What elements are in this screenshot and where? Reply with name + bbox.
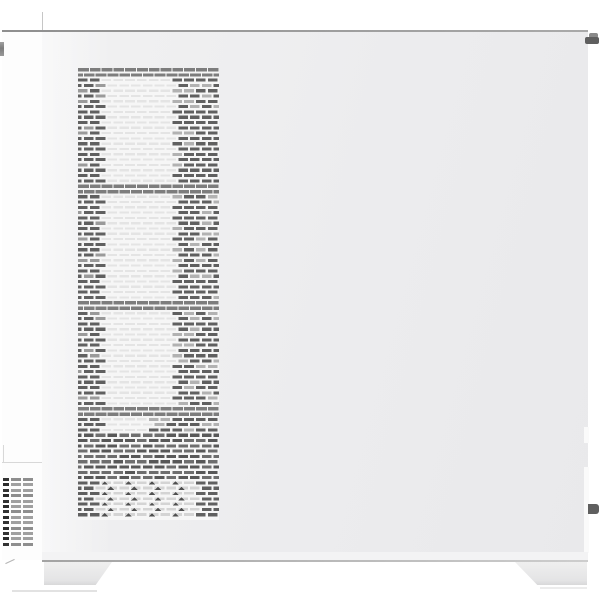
mesh-hole bbox=[90, 503, 100, 506]
mesh-hole bbox=[155, 243, 165, 245]
mesh-hole bbox=[178, 158, 188, 161]
mesh-hole bbox=[167, 137, 177, 139]
mesh-hole bbox=[184, 110, 194, 113]
mesh-hole bbox=[113, 280, 123, 282]
mesh-hole bbox=[113, 365, 123, 367]
mesh-hole bbox=[167, 307, 178, 310]
mesh-hole bbox=[196, 344, 206, 347]
mesh-hole bbox=[202, 275, 212, 278]
mesh-hole bbox=[96, 264, 106, 267]
mesh-hole bbox=[90, 206, 100, 209]
mesh-hole bbox=[190, 254, 200, 257]
mesh-hole bbox=[161, 513, 171, 516]
mesh-hole bbox=[90, 492, 100, 495]
mesh-hole bbox=[137, 429, 147, 431]
mesh-hole bbox=[161, 439, 171, 442]
mesh-hole bbox=[131, 381, 141, 383]
mesh-hole bbox=[143, 201, 153, 203]
mesh-hole bbox=[84, 466, 94, 469]
mesh-hole bbox=[102, 291, 112, 293]
mesh-hole bbox=[90, 280, 100, 283]
mesh-hole bbox=[108, 328, 118, 330]
mesh-hole bbox=[161, 68, 172, 71]
mesh-hole bbox=[178, 338, 188, 341]
mesh-hole bbox=[208, 195, 218, 198]
mesh-hole bbox=[90, 185, 101, 188]
mesh-hole bbox=[155, 275, 165, 277]
mesh-hole bbox=[155, 73, 166, 76]
grille-slot bbox=[3, 483, 9, 486]
mesh-hole bbox=[161, 312, 171, 314]
mesh-hole bbox=[108, 360, 118, 362]
mesh-hole bbox=[113, 217, 123, 219]
mesh-hole bbox=[143, 233, 153, 235]
mesh-hole bbox=[102, 270, 112, 272]
mesh-hole bbox=[96, 73, 107, 76]
mesh-hole bbox=[190, 169, 200, 172]
mesh-hole bbox=[161, 259, 171, 261]
mesh-hole bbox=[149, 333, 159, 335]
mesh-hole bbox=[202, 423, 212, 426]
mesh-hole bbox=[143, 497, 153, 500]
grille-slot bbox=[11, 483, 21, 486]
mesh-hole bbox=[196, 471, 206, 474]
mesh-hole bbox=[184, 238, 194, 241]
mesh-hole bbox=[119, 508, 129, 511]
mesh-hole bbox=[167, 222, 177, 224]
mesh-hole bbox=[78, 407, 89, 410]
mesh-hole bbox=[125, 386, 135, 388]
mesh-hole bbox=[125, 238, 135, 240]
mesh-hole bbox=[90, 216, 100, 219]
mesh-hole bbox=[90, 322, 100, 325]
mesh-hole bbox=[184, 460, 194, 463]
mesh-hole bbox=[167, 243, 177, 245]
mesh-hole bbox=[196, 428, 206, 431]
mesh-hole bbox=[149, 280, 159, 282]
mesh-hole bbox=[167, 466, 177, 469]
mesh-hole bbox=[202, 148, 212, 151]
mesh-hole bbox=[78, 386, 88, 389]
mesh-hole bbox=[184, 174, 194, 177]
mesh-hole bbox=[202, 444, 212, 447]
mesh-hole bbox=[78, 142, 88, 145]
mesh-hole bbox=[78, 285, 82, 288]
mesh-hole bbox=[131, 455, 141, 458]
mesh-hole bbox=[125, 333, 135, 335]
mesh-hole bbox=[214, 232, 219, 235]
mesh-hole bbox=[125, 90, 135, 92]
mesh-hole bbox=[84, 211, 94, 214]
mesh-hole bbox=[184, 365, 194, 368]
mesh-hole bbox=[131, 212, 141, 214]
mesh-hole bbox=[208, 503, 218, 506]
mesh-hole bbox=[214, 148, 219, 151]
mesh-hole bbox=[178, 105, 188, 108]
mesh-hole bbox=[155, 434, 165, 437]
mesh-hole bbox=[172, 301, 183, 304]
mesh-hole bbox=[161, 174, 171, 176]
mesh-hole bbox=[84, 285, 94, 288]
mesh-hole bbox=[202, 338, 212, 341]
mesh-hole bbox=[214, 243, 219, 246]
mesh-hole bbox=[214, 201, 219, 204]
mesh-hole bbox=[178, 169, 188, 172]
grille-slot bbox=[3, 532, 9, 535]
mesh-hole bbox=[202, 232, 212, 235]
mesh-hole bbox=[131, 148, 141, 150]
mesh-hole bbox=[84, 434, 94, 437]
mesh-hole bbox=[78, 471, 88, 474]
mesh-hole bbox=[190, 95, 200, 98]
mesh-hole bbox=[178, 476, 188, 479]
mesh-hole bbox=[119, 307, 130, 310]
mesh-hole bbox=[125, 111, 135, 113]
grille-slot bbox=[3, 537, 9, 540]
mesh-hole bbox=[208, 259, 218, 262]
mesh-hole bbox=[167, 360, 177, 362]
mesh-hole bbox=[155, 169, 165, 171]
mesh-hole bbox=[78, 73, 83, 76]
mesh-hole bbox=[84, 391, 94, 394]
mesh-hole bbox=[172, 174, 182, 177]
mesh-hole bbox=[161, 481, 171, 484]
mesh-hole bbox=[102, 121, 112, 123]
mesh-hole bbox=[172, 439, 182, 442]
grille-slot bbox=[3, 510, 9, 513]
mesh-hole bbox=[119, 106, 129, 108]
grille-slot bbox=[11, 478, 21, 481]
mesh-hole bbox=[119, 73, 130, 76]
mesh-hole bbox=[108, 95, 118, 97]
mesh-hole bbox=[84, 444, 94, 447]
mesh-hole bbox=[113, 206, 123, 208]
mesh-hole bbox=[102, 365, 112, 367]
mesh-hole bbox=[78, 153, 88, 156]
mesh-hole bbox=[90, 365, 100, 368]
mesh-hole bbox=[155, 328, 165, 330]
mesh-hole bbox=[90, 460, 100, 463]
mesh-hole bbox=[108, 265, 118, 267]
mesh-hole bbox=[196, 503, 206, 506]
mesh-hole bbox=[184, 68, 195, 71]
mesh-hole bbox=[84, 381, 94, 384]
mesh-hole bbox=[131, 254, 141, 256]
mesh-hole bbox=[214, 158, 219, 161]
mesh-hole bbox=[78, 137, 82, 140]
mesh-hole bbox=[102, 143, 112, 145]
mesh-hole bbox=[137, 79, 147, 81]
mesh-hole bbox=[214, 296, 219, 299]
mesh-hole bbox=[90, 301, 101, 304]
mesh-hole bbox=[131, 116, 141, 118]
mesh-hole bbox=[90, 227, 100, 230]
mesh-hole bbox=[167, 455, 177, 458]
mesh-hole bbox=[167, 116, 177, 118]
mesh-hole bbox=[167, 381, 177, 383]
mesh-hole bbox=[102, 397, 112, 399]
mesh-hole bbox=[184, 481, 194, 484]
mesh-hole bbox=[90, 418, 100, 421]
mesh-hole bbox=[78, 513, 88, 516]
mesh-hole bbox=[196, 227, 206, 230]
mesh-hole bbox=[84, 497, 94, 500]
mesh-hole bbox=[190, 296, 200, 299]
mesh-hole bbox=[96, 434, 106, 437]
mesh-hole bbox=[78, 338, 82, 341]
mesh-hole bbox=[208, 312, 218, 315]
mesh-hole bbox=[137, 386, 147, 388]
mesh-hole bbox=[78, 317, 82, 320]
mesh-hole bbox=[125, 174, 135, 176]
mesh-hole bbox=[78, 264, 82, 267]
mesh-hole bbox=[202, 370, 212, 373]
mesh-hole bbox=[78, 381, 82, 384]
mesh-hole bbox=[178, 466, 188, 469]
mesh-hole bbox=[90, 142, 100, 145]
mesh-hole bbox=[214, 285, 219, 288]
mesh-hole bbox=[90, 375, 100, 378]
mesh-hole bbox=[149, 249, 159, 251]
mesh-hole bbox=[78, 211, 82, 214]
mesh-hole bbox=[155, 307, 166, 310]
mesh-hole bbox=[149, 270, 159, 272]
mesh-hole bbox=[190, 423, 200, 426]
mesh-hole bbox=[208, 121, 218, 124]
mesh-hole bbox=[131, 392, 141, 394]
mesh-hole bbox=[178, 126, 188, 129]
mesh-hole bbox=[78, 370, 82, 373]
mesh-hole bbox=[208, 280, 218, 283]
foot-shadow-right bbox=[540, 587, 587, 589]
mesh-hole bbox=[137, 418, 147, 420]
mesh-hole bbox=[149, 439, 159, 442]
mesh-hole bbox=[149, 121, 159, 123]
mesh-hole bbox=[178, 254, 188, 257]
mesh-hole bbox=[90, 259, 100, 262]
mesh-hole bbox=[208, 163, 218, 166]
mesh-hole bbox=[172, 68, 183, 71]
mesh-hole bbox=[214, 275, 219, 278]
mesh-hole bbox=[90, 407, 101, 410]
mesh-hole bbox=[108, 402, 118, 404]
mesh-hole bbox=[167, 265, 177, 267]
mesh-hole bbox=[113, 460, 123, 463]
mesh-hole bbox=[184, 397, 194, 400]
mesh-hole bbox=[196, 121, 206, 124]
mesh-hole bbox=[178, 222, 188, 225]
mesh-hole bbox=[137, 185, 148, 188]
mesh-hole bbox=[208, 79, 218, 82]
mesh-hole bbox=[161, 143, 171, 145]
mesh-hole bbox=[119, 137, 129, 139]
mesh-hole bbox=[190, 317, 200, 320]
mesh-hole bbox=[155, 116, 165, 118]
mesh-hole bbox=[214, 444, 219, 447]
mesh-hole bbox=[131, 286, 141, 288]
grille-slot bbox=[23, 510, 33, 513]
mesh-hole bbox=[214, 95, 219, 98]
mesh-hole bbox=[84, 360, 94, 363]
grille-slot bbox=[11, 510, 21, 513]
mesh-hole bbox=[90, 428, 100, 431]
mesh-hole bbox=[202, 466, 212, 469]
mesh-hole bbox=[149, 460, 159, 463]
grille-slot bbox=[23, 494, 33, 497]
mesh-hole bbox=[149, 153, 159, 155]
mesh-hole bbox=[119, 190, 130, 193]
mesh-hole bbox=[172, 428, 182, 431]
mesh-hole bbox=[113, 174, 123, 176]
mesh-hole bbox=[214, 434, 219, 437]
mesh-hole bbox=[172, 322, 182, 325]
mesh-hole bbox=[161, 471, 171, 474]
mesh-hole bbox=[108, 137, 118, 139]
mesh-hole bbox=[208, 375, 218, 378]
mesh-hole bbox=[137, 365, 147, 367]
mesh-hole bbox=[131, 106, 141, 108]
grille-slot bbox=[11, 521, 21, 524]
mesh-hole bbox=[90, 153, 100, 156]
mesh-hole bbox=[119, 233, 129, 235]
mesh-hole bbox=[161, 79, 171, 81]
mesh-hole bbox=[108, 413, 119, 416]
mesh-hole bbox=[84, 232, 94, 235]
mesh-hole bbox=[149, 344, 159, 346]
mesh-hole bbox=[96, 455, 106, 458]
mesh-hole bbox=[125, 206, 135, 208]
mesh-hole bbox=[78, 254, 82, 257]
mesh-hole bbox=[214, 338, 219, 341]
thumbscrew-head bbox=[585, 37, 599, 44]
mesh-hole bbox=[208, 333, 218, 336]
mesh-hole bbox=[78, 243, 82, 246]
mesh-hole bbox=[208, 100, 218, 103]
mesh-hole bbox=[190, 264, 200, 267]
mesh-hole bbox=[84, 169, 94, 172]
grille-slot bbox=[3, 489, 9, 492]
mesh-hole bbox=[161, 418, 171, 421]
mesh-hole bbox=[196, 89, 206, 92]
mesh-hole bbox=[214, 254, 219, 257]
mesh-hole bbox=[155, 318, 165, 320]
mesh-hole bbox=[172, 333, 182, 336]
mesh-hole bbox=[113, 312, 123, 314]
mesh-hole bbox=[167, 233, 177, 235]
mesh-hole bbox=[149, 132, 159, 134]
mesh-hole bbox=[78, 110, 88, 113]
mesh-hole bbox=[214, 349, 219, 352]
mesh-hole bbox=[208, 397, 218, 400]
mesh-hole bbox=[84, 307, 95, 310]
mesh-hole bbox=[78, 503, 88, 506]
mesh-hole bbox=[196, 174, 206, 177]
mesh-hole bbox=[96, 508, 106, 511]
mesh-hole bbox=[149, 164, 159, 166]
mesh-hole bbox=[131, 169, 141, 171]
mesh-hole bbox=[131, 476, 141, 479]
mesh-hole bbox=[172, 407, 183, 410]
mesh-hole bbox=[143, 148, 153, 150]
mesh-hole bbox=[78, 206, 88, 209]
mesh-hole bbox=[172, 238, 182, 241]
mesh-hole bbox=[167, 73, 178, 76]
mesh-hole bbox=[143, 318, 153, 320]
mesh-hole bbox=[78, 307, 83, 310]
mesh-hole bbox=[78, 248, 88, 251]
mesh-hole bbox=[119, 201, 129, 203]
mesh-hole bbox=[184, 163, 194, 166]
rear-edge-notch-upper bbox=[584, 427, 589, 443]
mesh-hole bbox=[84, 487, 94, 490]
mesh-hole bbox=[155, 159, 165, 161]
mesh-hole bbox=[131, 180, 141, 182]
mesh-hole bbox=[90, 471, 100, 474]
mesh-hole bbox=[78, 269, 88, 272]
mesh-hole bbox=[196, 216, 206, 219]
mesh-hole bbox=[84, 370, 94, 373]
mesh-hole bbox=[113, 471, 123, 474]
mesh-hole bbox=[84, 328, 94, 331]
mesh-hole bbox=[149, 217, 159, 219]
mesh-hole bbox=[78, 450, 88, 453]
mesh-hole bbox=[137, 376, 147, 378]
mesh-hole bbox=[178, 201, 188, 204]
mesh-hole bbox=[84, 158, 94, 161]
mesh-hole bbox=[190, 307, 201, 310]
mesh-hole bbox=[184, 100, 194, 103]
mesh-hole bbox=[78, 402, 82, 405]
mesh-hole bbox=[119, 381, 129, 383]
mesh-hole bbox=[143, 339, 153, 341]
mesh-hole bbox=[184, 259, 194, 262]
mesh-hole bbox=[190, 211, 200, 214]
mesh-hole bbox=[102, 164, 112, 166]
mesh-hole bbox=[172, 248, 182, 251]
mesh-hole bbox=[214, 317, 219, 320]
mesh-hole bbox=[161, 270, 171, 272]
mesh-hole bbox=[208, 153, 218, 156]
mesh-hole bbox=[143, 275, 153, 277]
mesh-hole bbox=[102, 217, 112, 219]
mesh-hole bbox=[143, 243, 153, 245]
grille-slot bbox=[3, 521, 9, 524]
mesh-hole bbox=[190, 508, 200, 511]
mesh-hole bbox=[172, 142, 182, 145]
mesh-hole bbox=[108, 201, 118, 203]
mesh-hole bbox=[161, 217, 171, 219]
mesh-hole bbox=[119, 434, 129, 437]
mesh-hole bbox=[137, 344, 147, 346]
mesh-hole bbox=[214, 413, 219, 416]
mesh-hole bbox=[214, 222, 219, 225]
grille-slot bbox=[11, 532, 21, 535]
mesh-hole bbox=[161, 280, 171, 282]
mesh-hole bbox=[155, 466, 165, 469]
mesh-hole bbox=[113, 90, 123, 92]
mesh-hole bbox=[90, 238, 100, 241]
mesh-hole bbox=[143, 180, 153, 182]
mesh-hole bbox=[167, 487, 177, 490]
mesh-hole bbox=[125, 376, 135, 378]
mesh-hole bbox=[214, 137, 219, 140]
grille-slot bbox=[11, 505, 21, 508]
mesh-hole bbox=[196, 100, 206, 103]
mesh-hole bbox=[178, 148, 188, 151]
mesh-hole bbox=[137, 513, 147, 516]
mesh-hole bbox=[78, 79, 88, 82]
mesh-hole bbox=[113, 227, 123, 229]
